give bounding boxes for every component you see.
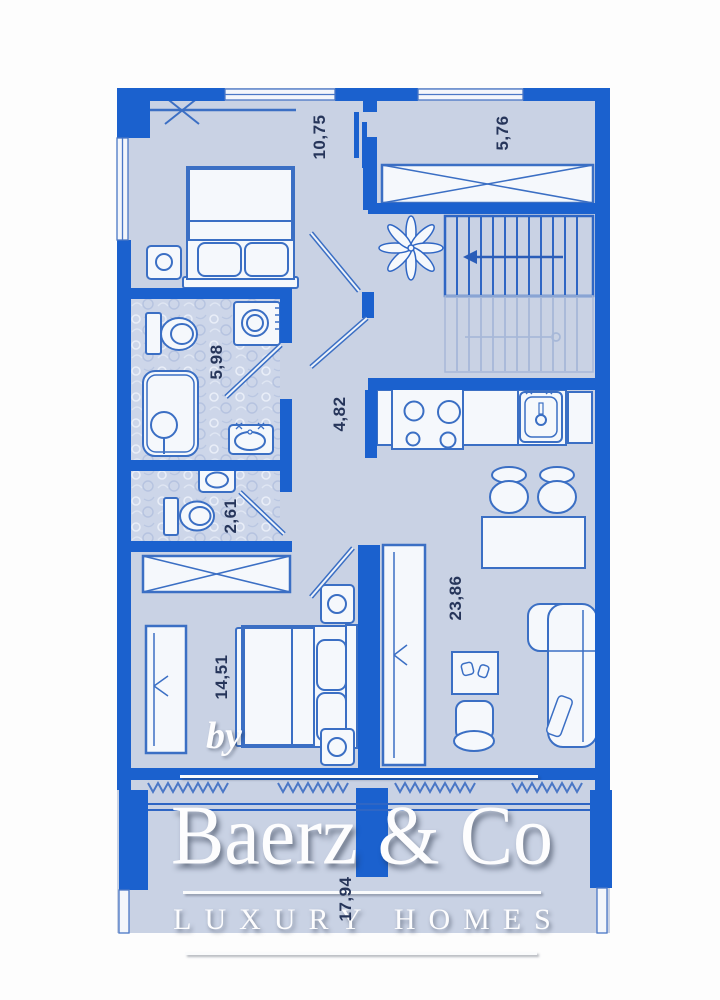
watermark-brand: Baerz & Co bbox=[152, 788, 572, 884]
plant-icon bbox=[379, 216, 443, 280]
room-area-label-terrace: 17,94 bbox=[335, 867, 357, 931]
dining-table-icon bbox=[482, 517, 585, 568]
armchair-icon bbox=[454, 701, 494, 751]
room-area-label-storage-top-right: 5,76 bbox=[492, 101, 514, 165]
room-area-label-bathroom: 5,98 bbox=[206, 330, 228, 394]
kitchen-sink-icon bbox=[520, 388, 562, 442]
kitchen-cabinet-icon bbox=[568, 392, 592, 443]
wardrobe-icon bbox=[146, 626, 186, 753]
room-area-label-hallway: 4,82 bbox=[329, 382, 351, 446]
nightstand-icon bbox=[321, 729, 354, 765]
chair-icon bbox=[490, 467, 528, 513]
bed-icon bbox=[183, 167, 298, 288]
watermark-rule-top bbox=[180, 775, 538, 778]
room-area-label-wc: 2,61 bbox=[220, 484, 242, 548]
room-area-label-bedroom-top: 10,75 bbox=[309, 105, 331, 169]
room-area-label-bedroom-bottom: 14,51 bbox=[211, 645, 233, 709]
washing-machine-icon bbox=[234, 302, 280, 345]
floor-plan-page: 10,75 5,76 5,98 4,82 2,61 14,51 23,86 17… bbox=[0, 0, 720, 1000]
chair-icon bbox=[538, 467, 576, 513]
watermark-rule-bottom bbox=[185, 952, 537, 955]
wardrobe-icon bbox=[382, 165, 593, 203]
sink-icon bbox=[229, 423, 273, 454]
cabinet-icon bbox=[383, 545, 425, 765]
bathtub-icon bbox=[143, 371, 198, 456]
nightstand-icon bbox=[321, 585, 354, 623]
stove-icon bbox=[392, 388, 463, 449]
wardrobe-icon bbox=[143, 556, 290, 592]
watermark-tagline: LUXURY HOMES bbox=[152, 903, 572, 937]
watermark-rule-middle bbox=[183, 891, 541, 894]
nightstand-icon bbox=[147, 246, 181, 279]
watermark-by: by bbox=[206, 714, 242, 758]
room-area-label-living-kitchen: 23,86 bbox=[445, 566, 467, 630]
coffee-table-icon bbox=[452, 652, 498, 694]
